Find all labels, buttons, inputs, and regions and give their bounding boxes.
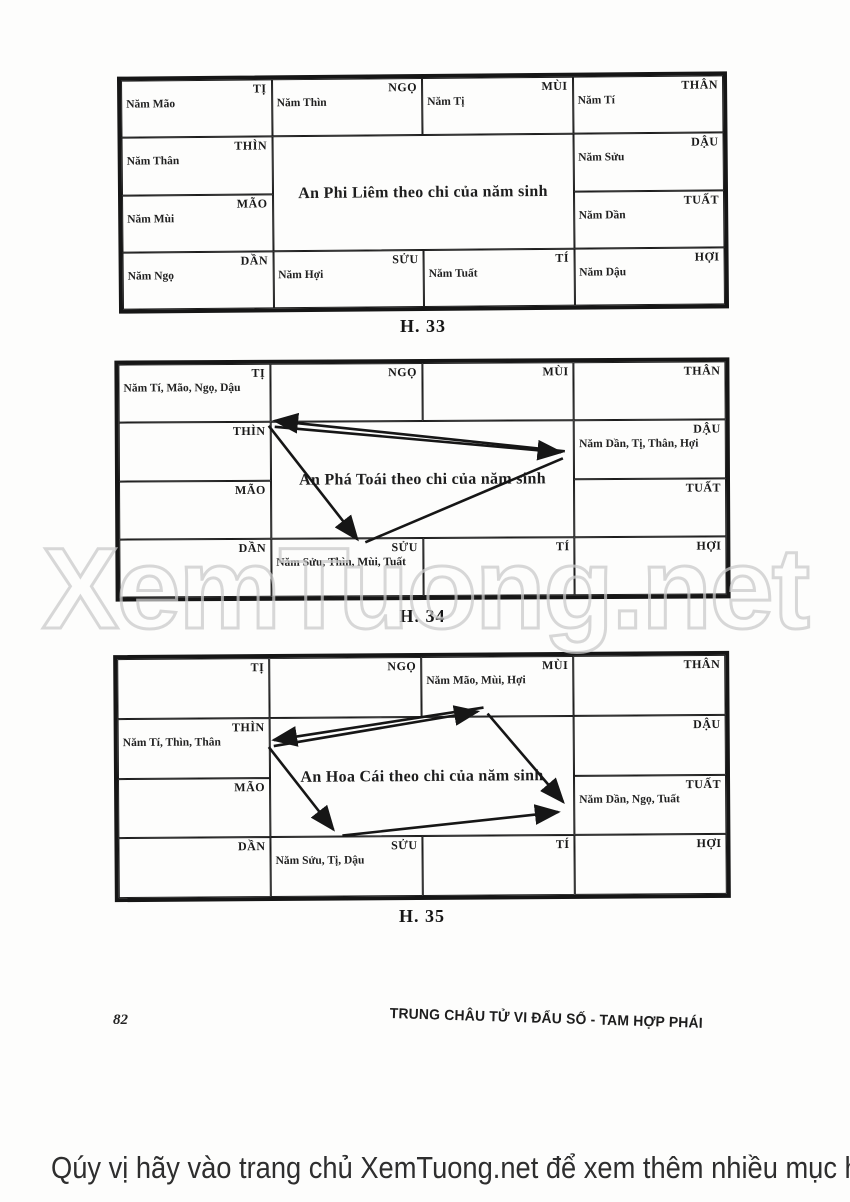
zodiac-grid-h33: TỊNăm Mão NGỌNăm Thìn MÙINăm Tị THÂNNăm … <box>117 71 729 313</box>
page-number: 82 <box>113 1012 128 1029</box>
center-area: An Phi Liêm theo chi của năm sinh <box>272 134 574 251</box>
diagram-h33: TỊNăm Mão NGỌNăm Thìn MÙINăm Tị THÂNNăm … <box>117 71 729 313</box>
cell-tuat: TUẤTNăm Dần <box>573 190 724 249</box>
cell-dan: DẦN <box>118 837 270 898</box>
branch-label: THÂN <box>684 363 721 378</box>
branch-label: MÙI <box>542 364 568 379</box>
cell-note: Năm Tị <box>427 96 464 108</box>
branch-label: THÌN <box>232 720 265 735</box>
cell-than: THÂN <box>573 655 725 716</box>
cell-mui: MÙI <box>422 362 574 421</box>
cell-dan: DẦNNăm Ngọ <box>123 251 274 310</box>
branch-label: TỊ <box>251 366 265 381</box>
cell-dau: DẬUNăm Dần, Tị, Thân, Hợi <box>574 420 726 479</box>
branch-label: MÃO <box>235 482 266 497</box>
cell-ti: TỊ <box>117 658 269 719</box>
branch-label: TỊ <box>250 660 264 675</box>
cell-thin: THÌNNăm Tí, Thìn, Thân <box>118 718 270 779</box>
cell-dau: DẬU <box>574 715 726 776</box>
diagram-h35: TỊ NGỌ MÙINăm Mão, Mùi, Hợi THÂN THÌNNăm… <box>113 651 731 902</box>
cell-note: Năm Sửu, Tị, Dậu <box>276 855 365 868</box>
scanned-page: TỊNăm Mão NGỌNăm Thìn MÙINăm Tị THÂNNăm … <box>0 0 850 1202</box>
cell-mui: MÙINăm Tị <box>422 77 573 136</box>
branch-label: SỬU <box>392 252 419 267</box>
branch-label: NGỌ <box>387 659 416 674</box>
cell-ti: TỊNăm Mão <box>121 79 272 138</box>
cell-ngo: NGỌNăm Thìn <box>272 78 423 137</box>
diagram-title: An Phi Liêm theo chi của năm sinh <box>298 182 548 202</box>
cell-than: THÂN <box>574 361 726 420</box>
cell-note: Năm Dần, Tị, Thân, Hợi <box>579 438 698 451</box>
book-footer-title: TRUNG CHÂU TỬ VI ĐẨU SỐ - TAM HỢP PHÁI <box>389 1006 725 1033</box>
branch-label: TUẤT <box>686 776 721 791</box>
cell-mui: MÙINăm Mão, Mùi, Hợi <box>421 656 573 717</box>
cell-ti: TỊNăm Tí, Mão, Ngọ, Dậu <box>118 364 270 423</box>
cell-note: Năm Tí, Mão, Ngọ, Dậu <box>123 382 240 395</box>
cell-note: Năm Hợi <box>278 269 323 281</box>
branch-label: THÂN <box>681 77 718 92</box>
figure-caption-h35: H. 35 <box>114 906 730 927</box>
branch-label: DẬU <box>693 422 721 437</box>
branch-label: DẦN <box>241 253 269 268</box>
zodiac-grid-h35: TỊ NGỌ MÙINăm Mão, Mùi, Hợi THÂN THÌNNăm… <box>113 651 731 902</box>
branch-label: TUẤT <box>686 480 721 495</box>
cell-mao: MÃO <box>118 778 270 839</box>
cell-note: Năm Dậu <box>579 266 626 278</box>
cell-thin: THÌNNăm Thân <box>122 137 273 196</box>
branch-label: MÙI <box>542 658 568 673</box>
branch-label: HỢI <box>697 836 722 851</box>
branch-label: TUẤT <box>684 192 719 207</box>
cell-tuat: TUẤTNăm Dần, Ngọ, Tuất <box>574 774 726 835</box>
branch-label: MÃO <box>237 196 268 211</box>
cell-note: Năm Mão <box>126 98 175 110</box>
center-area: An Phá Toái theo chi của năm sinh <box>270 420 574 538</box>
branch-label: NGỌ <box>388 80 417 95</box>
cell-note: Năm Dần <box>579 209 626 221</box>
bottom-banner-text: Qúy vị hãy vào trang chủ XemTuong.net để… <box>51 1150 799 1186</box>
cell-note: Năm Tuất <box>429 267 478 279</box>
cell-dau: DẬUNăm Sửu <box>573 133 724 192</box>
branch-label: TÍ <box>555 250 569 265</box>
cell-hoi: HỢI <box>574 834 726 895</box>
branch-label: SỬU <box>391 838 417 853</box>
cell-ngo: NGỌ <box>269 657 421 718</box>
diagram-title: An Hoa Cái theo chi của năm sinh <box>300 767 543 787</box>
branch-label: THÌN <box>233 424 266 439</box>
cell-note: Năm Dần, Ngọ, Tuất <box>579 793 680 806</box>
cell-ngo: NGỌ <box>270 363 422 422</box>
cell-mao: MÃONăm Mùi <box>122 194 273 253</box>
branch-label: TÍ <box>556 837 570 852</box>
branch-label: DẦN <box>238 839 266 854</box>
cell-note: Năm Mùi <box>127 213 174 225</box>
branch-label: MÃO <box>234 780 265 795</box>
cell-ty: TÍNăm Tuất <box>423 248 574 307</box>
cell-note: Năm Ngọ <box>128 270 174 282</box>
site-watermark: XemTuong.net <box>0 532 850 647</box>
branch-label: NGỌ <box>388 365 417 380</box>
diagram-title: An Phá Toái theo chi của năm sinh <box>299 470 546 489</box>
branch-label: DẬU <box>691 135 719 150</box>
center-area: An Hoa Cái theo chi của năm sinh <box>270 716 575 838</box>
branch-label: HỢI <box>695 249 720 264</box>
cell-note: Năm Thân <box>127 155 180 167</box>
cell-note: Năm Sửu <box>578 151 624 163</box>
branch-label: TỊ <box>253 81 267 96</box>
cell-suu: SỬUNăm Hợi <box>273 250 424 309</box>
branch-label: THÌN <box>234 139 267 154</box>
cell-note: Năm Tí <box>578 94 615 106</box>
branch-label: THÂN <box>684 657 721 672</box>
cell-note: Năm Tí, Thìn, Thân <box>123 736 221 749</box>
cell-hoi: HỢINăm Dậu <box>574 247 725 306</box>
figure-caption-h33: H. 33 <box>118 316 728 337</box>
cell-note: Năm Mão, Mùi, Hợi <box>426 674 525 687</box>
cell-ty: TÍ <box>422 835 574 896</box>
branch-label: MÙI <box>541 79 567 94</box>
branch-label: DẬU <box>693 717 721 732</box>
cell-note: Năm Thìn <box>277 97 327 109</box>
cell-thin: THÌN <box>119 422 271 481</box>
cell-suu: SỬUNăm Sửu, Tị, Dậu <box>270 836 422 897</box>
cell-than: THÂNNăm Tí <box>572 75 723 134</box>
